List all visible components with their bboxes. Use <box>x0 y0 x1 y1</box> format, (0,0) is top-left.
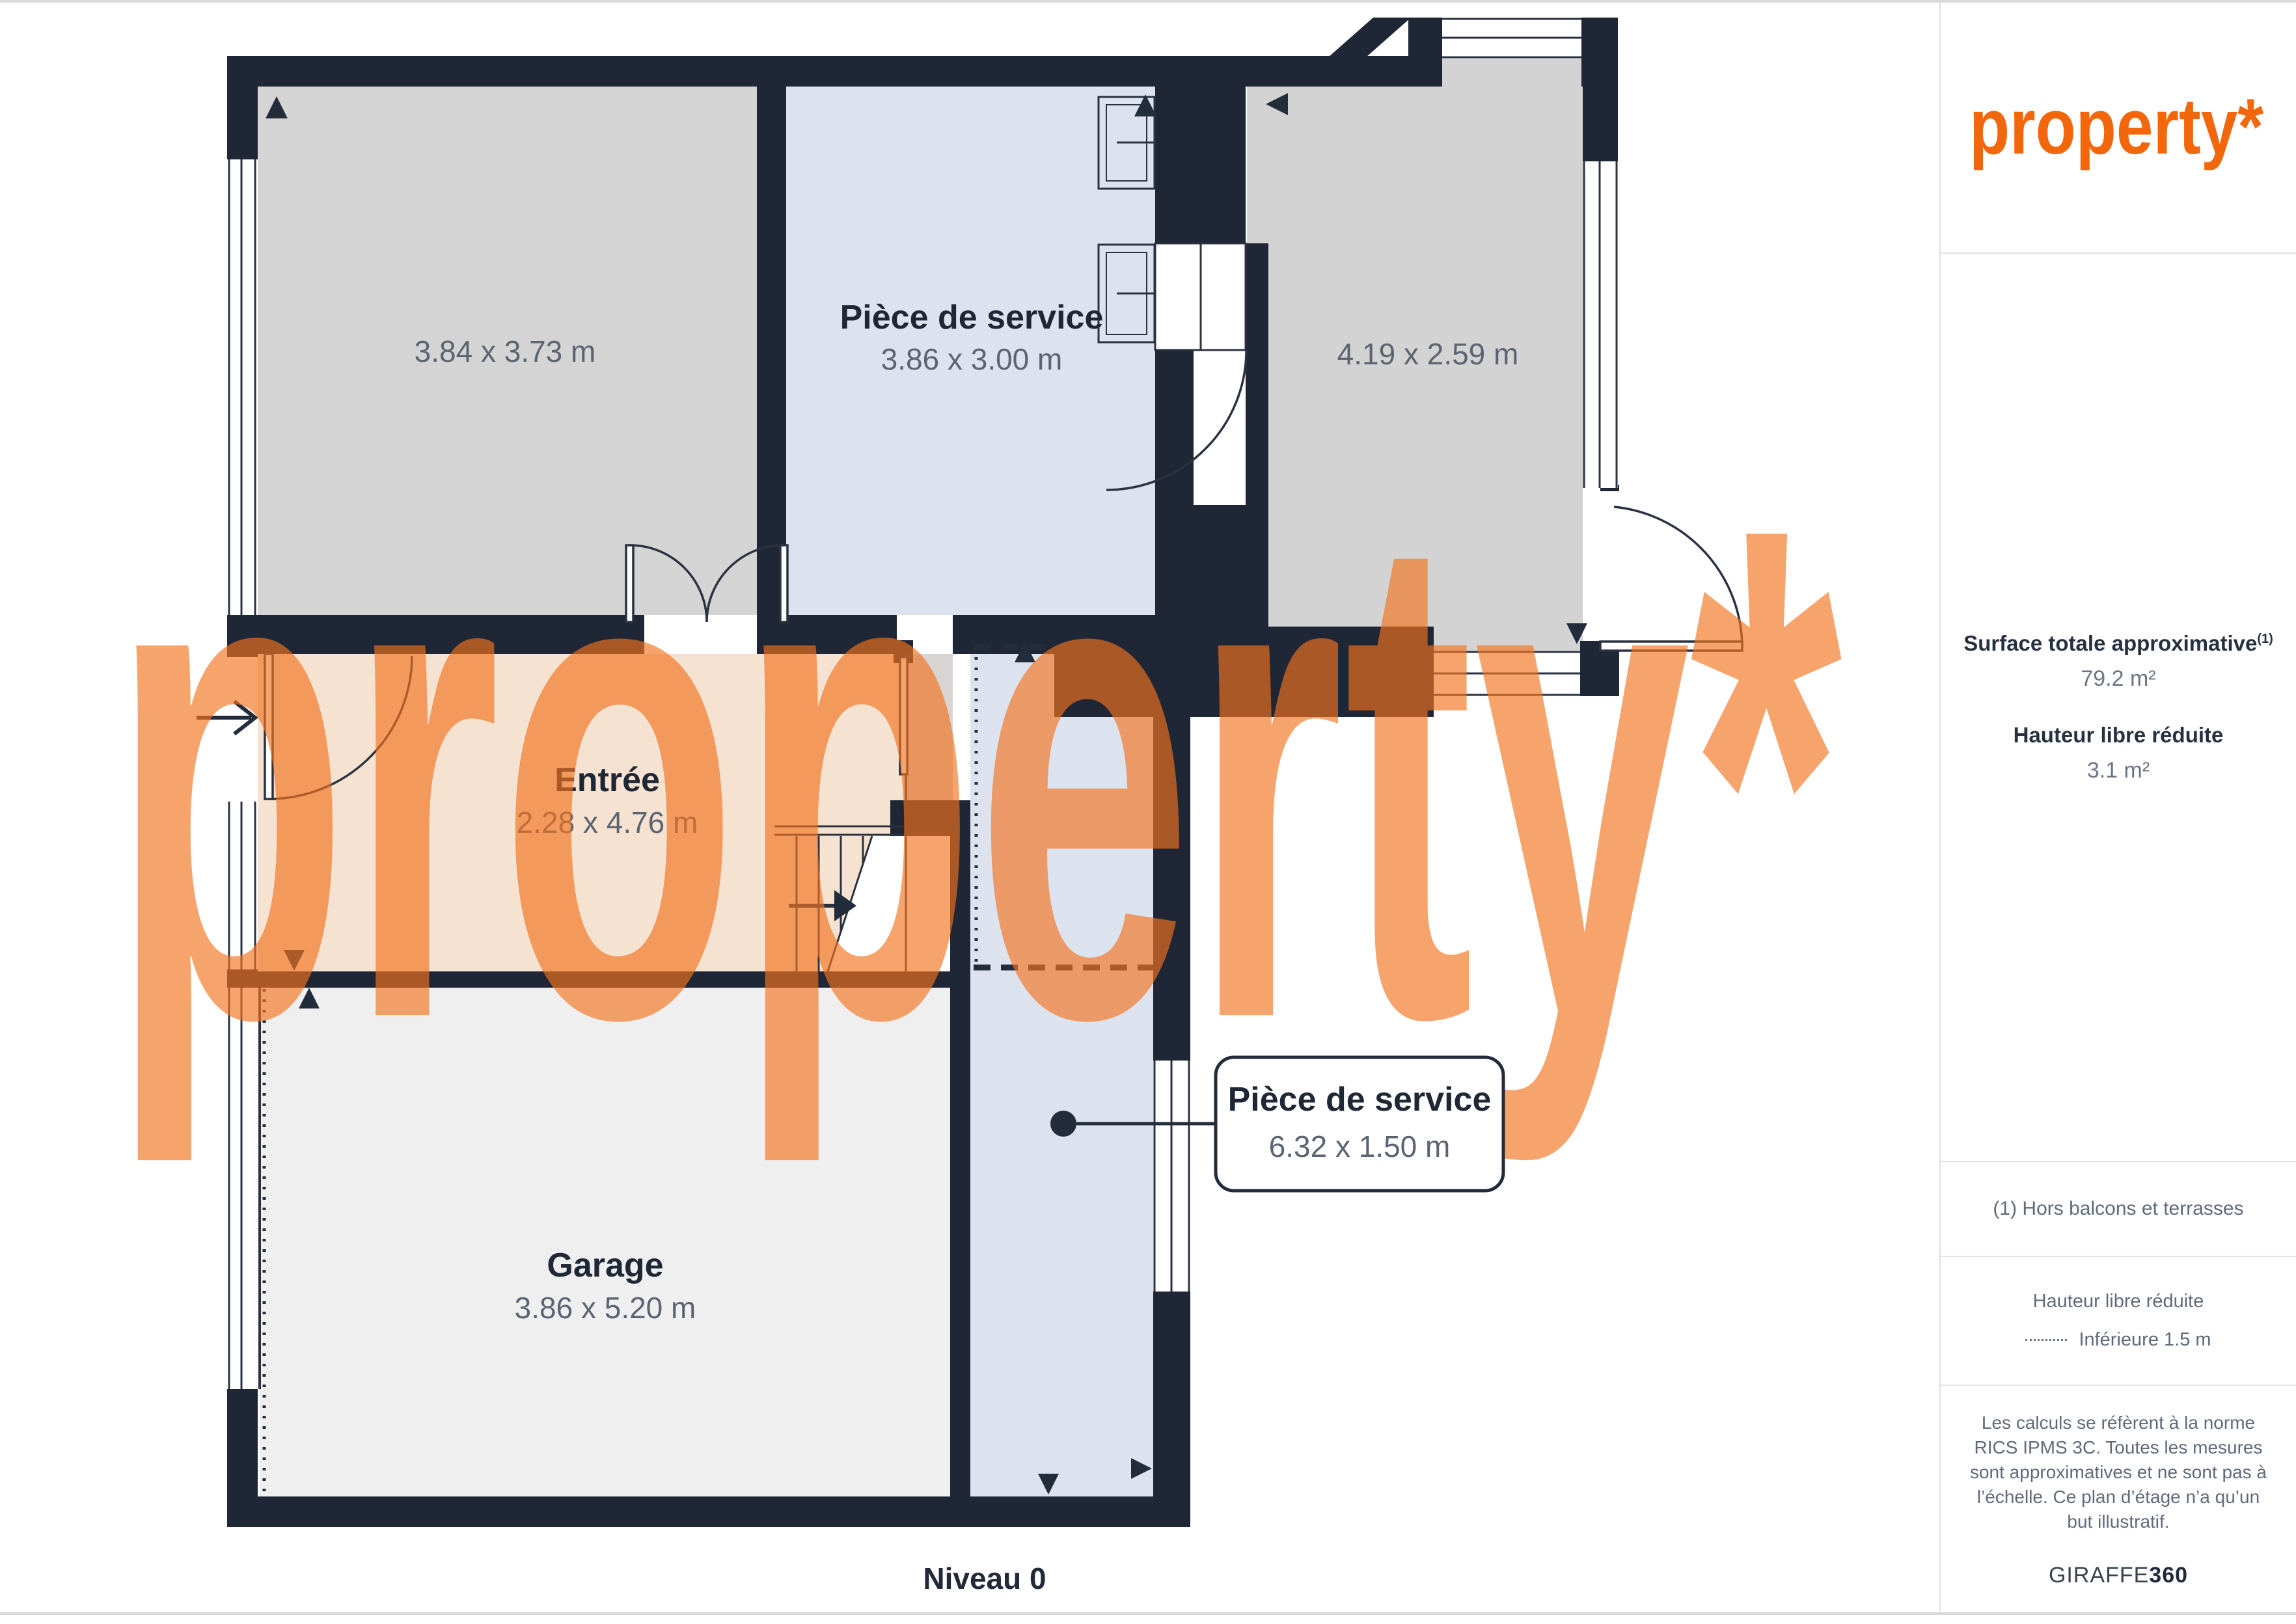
info-sidebar: property* Surface totale approximative(1… <box>1939 3 2296 1612</box>
reduced-height-label: Hauteur libre réduite <box>2014 723 2224 748</box>
surface-label: Surface totale approximative(1) <box>1963 631 2273 656</box>
callout-box <box>1216 1057 1503 1191</box>
room-service-top-title: Pièce de service <box>840 299 1104 336</box>
legend-title: Hauteur libre réduite <box>2033 1291 2204 1312</box>
room-top-left-dims: 3.84 x 3.73 m <box>415 334 596 368</box>
callout-title: Pièce de service <box>1228 1081 1492 1118</box>
giraffe-brand: GIRAFFE360 <box>2049 1563 2188 1588</box>
giraffe-brand-suffix: 360 <box>2149 1563 2188 1588</box>
giraffe-brand-name: GIRAFFE <box>2049 1563 2149 1588</box>
floorplan-canvas: 3.84 x 3.73 m Pièce de service 3.86 x 3.… <box>0 0 1939 1624</box>
disclaimer-text: Les calculs se réfèrent à la norme RICS … <box>1965 1411 2271 1534</box>
room-top-right-dims: 4.19 x 2.59 m <box>1337 337 1519 371</box>
surface-footnote-marker: (1) <box>2257 632 2273 646</box>
floorplan-page: 3.84 x 3.73 m Pièce de service 3.86 x 3.… <box>0 0 2296 1624</box>
logo-svg: property* <box>1941 3 2296 252</box>
floorplan-svg: 3.84 x 3.73 m Pièce de service 3.86 x 3.… <box>0 0 1939 1624</box>
footnote-section: (1) Hors balcons et terrasses <box>1941 1162 2296 1257</box>
surface-label-text: Surface totale approximative <box>1963 631 2257 655</box>
garage-title: Garage <box>547 1247 663 1284</box>
dotted-line-swatch <box>2025 1339 2067 1341</box>
level-label: Niveau 0 <box>923 1562 1046 1595</box>
surface-value: 79.2 m² <box>2081 666 2155 692</box>
brand-logo: property* <box>1969 82 2263 170</box>
room-service-top-dims: 3.86 x 3.00 m <box>881 342 1063 376</box>
disclaimer-section: Les calculs se réfèrent à la norme RICS … <box>1941 1386 2296 1612</box>
stats-section: Surface totale approximative(1) 79.2 m² … <box>1941 254 2296 1162</box>
page-bottom-border <box>0 1612 2296 1615</box>
callout-leader-dot <box>1050 1111 1076 1137</box>
logo-section: property* <box>1941 3 2296 254</box>
watermark: property* <box>111 382 1842 1168</box>
legend-row: Inférieure 1.5 m <box>2025 1329 2211 1351</box>
footnote-text: (1) Hors balcons et terrasses <box>1993 1198 2243 1220</box>
reduced-height-value: 3.1 m² <box>2087 758 2150 783</box>
garage-dims: 3.86 x 5.20 m <box>515 1291 696 1325</box>
legend-section: Hauteur libre réduite Inférieure 1.5 m <box>1941 1257 2296 1386</box>
callout-dims: 6.32 x 1.50 m <box>1269 1130 1451 1163</box>
legend-item: Inférieure 1.5 m <box>2079 1329 2211 1351</box>
